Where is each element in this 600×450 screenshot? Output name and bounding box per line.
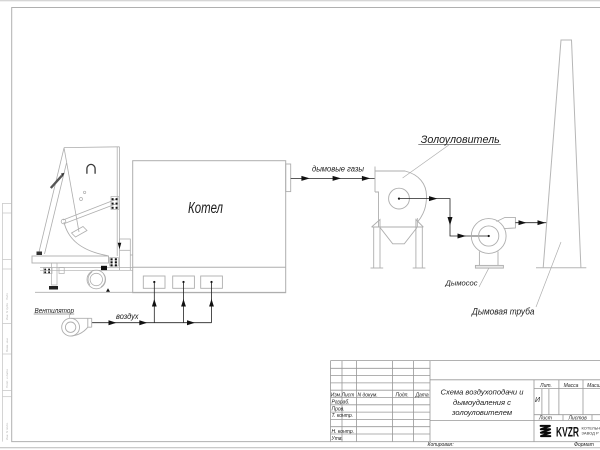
svg-text:Лист: Лист bbox=[538, 415, 552, 421]
svg-text:дымовые газы: дымовые газы bbox=[312, 164, 364, 173]
svg-text:воздух: воздух bbox=[116, 311, 139, 321]
svg-text:Подп. и дата: Подп. и дата bbox=[5, 369, 9, 388]
svg-text:Пров.: Пров. bbox=[332, 406, 345, 412]
svg-text:Инв. N подл.: Инв. N подл. bbox=[5, 422, 9, 440]
svg-text:Копировал:: Копировал: bbox=[428, 442, 455, 448]
svg-text:Формат: Формат bbox=[574, 442, 594, 448]
svg-text:Взам. инв.: Взам. инв. bbox=[5, 337, 9, 352]
svg-text:Н. контр.: Н. контр. bbox=[332, 429, 355, 435]
svg-text:ЗАВОД Р: ЗАВОД Р bbox=[582, 431, 599, 436]
svg-text:Вентилятор: Вентилятор bbox=[35, 306, 75, 315]
svg-text:Схема воздухоподачи и: Схема воздухоподачи и bbox=[441, 388, 525, 397]
svg-text:Подп.: Подп. bbox=[396, 393, 409, 399]
svg-text:Котел: Котел bbox=[188, 200, 223, 217]
svg-text:Листов: Листов bbox=[568, 415, 588, 421]
svg-text:KVZR: KVZR bbox=[556, 424, 579, 439]
svg-text:Масса: Масса bbox=[564, 383, 579, 389]
svg-text:Дымовая труба: Дымовая труба bbox=[471, 307, 534, 317]
svg-text:Дымосос: Дымосос bbox=[445, 278, 478, 287]
svg-text:Масш: Масш bbox=[587, 383, 600, 389]
svg-text:Дата: Дата bbox=[415, 393, 429, 399]
svg-text:Т. контр.: Т. контр. bbox=[332, 413, 354, 419]
svg-text:Разраб.: Разраб. bbox=[332, 399, 350, 405]
svg-text:Лит.: Лит. bbox=[539, 383, 552, 389]
svg-text:Подп.: Подп. bbox=[5, 292, 9, 300]
svg-text:золоуловителем: золоуловителем bbox=[451, 408, 513, 417]
svg-text:N докум.: N докум. bbox=[358, 393, 378, 399]
svg-text:дымоудаления с: дымоудаления с bbox=[453, 398, 511, 407]
svg-text:Инв. N дубл.: Инв. N дубл. bbox=[5, 302, 9, 320]
svg-text:Изм.Лист: Изм.Лист bbox=[331, 393, 355, 399]
svg-text:Утв.: Утв. bbox=[332, 436, 343, 442]
